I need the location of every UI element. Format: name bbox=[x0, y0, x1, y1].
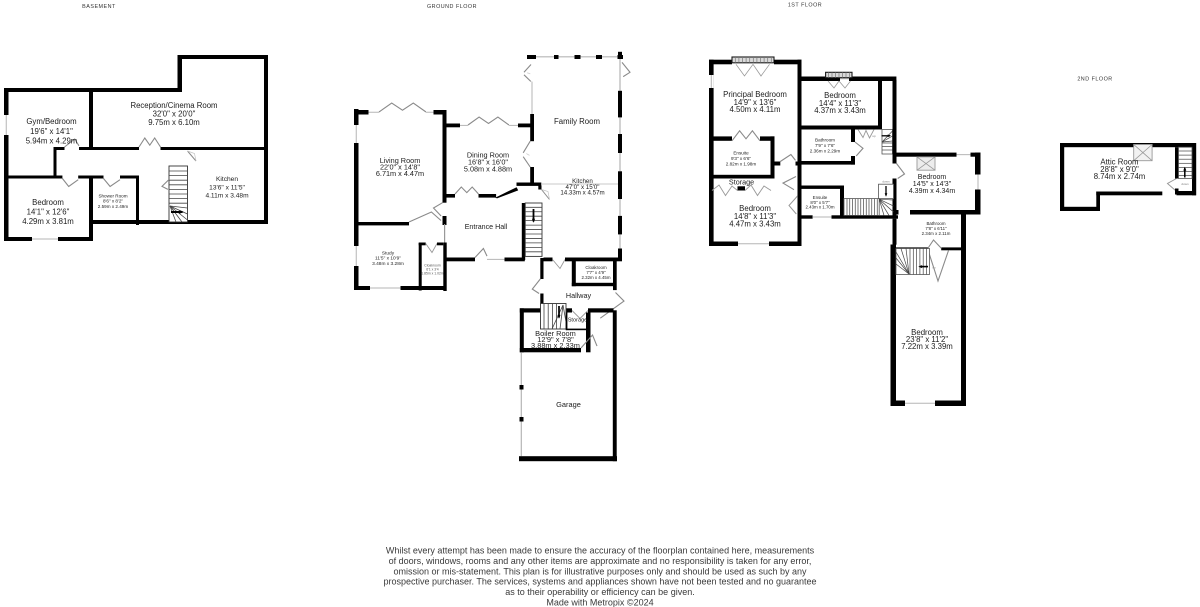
svg-text:Entrance Hall: Entrance Hall bbox=[465, 223, 508, 231]
svg-text:8'6" x 8'2": 8'6" x 8'2" bbox=[103, 199, 123, 204]
svg-text:Ensuite: Ensuite bbox=[733, 151, 749, 156]
svg-text:of doors, windows, rooms and a: of doors, windows, rooms and any other i… bbox=[389, 556, 812, 566]
svg-text:2.34m x 2.11m: 2.34m x 2.11m bbox=[922, 231, 951, 236]
svg-text:4.37m x 3.43m: 4.37m x 3.43m bbox=[814, 106, 866, 115]
svg-text:Gym/Bedroom: Gym/Bedroom bbox=[26, 117, 76, 126]
svg-text:2.32m x 4.45m: 2.32m x 4.45m bbox=[581, 275, 610, 280]
svg-text:omission or mis-statement. Thi: omission or mis-statement. This plan is … bbox=[393, 566, 807, 576]
svg-text:13'6" x 11'5": 13'6" x 11'5" bbox=[209, 184, 245, 191]
svg-text:Made with Metropix ©2024: Made with Metropix ©2024 bbox=[546, 598, 653, 607]
svg-text:Whilst every attempt has been: Whilst every attempt has been made to en… bbox=[386, 546, 815, 556]
svg-text:up: up bbox=[932, 266, 936, 270]
svg-text:8.74m x 2.74m: 8.74m x 2.74m bbox=[1094, 172, 1146, 181]
svg-text:Storage: Storage bbox=[568, 318, 588, 324]
svg-text:Hallway: Hallway bbox=[566, 291, 592, 300]
svg-text:BASEMENT: BASEMENT bbox=[82, 4, 116, 10]
svg-text:14.33m x 4.57m: 14.33m x 4.57m bbox=[560, 190, 604, 197]
svg-text:down: down bbox=[882, 180, 890, 184]
svg-text:7'9" x 7'6": 7'9" x 7'6" bbox=[815, 143, 835, 148]
svg-text:2ND FLOOR: 2ND FLOOR bbox=[1077, 77, 1112, 83]
svg-text:Bedroom: Bedroom bbox=[32, 198, 64, 207]
svg-text:4.39m x 4.34m: 4.39m x 4.34m bbox=[909, 188, 955, 195]
svg-text:9'3" x 6'6": 9'3" x 6'6" bbox=[731, 156, 751, 161]
svg-text:Garage: Garage bbox=[556, 400, 581, 409]
svg-text:Kitchen: Kitchen bbox=[216, 176, 238, 183]
svg-text:3.48m x 3.28m: 3.48m x 3.28m bbox=[372, 261, 404, 267]
svg-text:4.50m x 4.11m: 4.50m x 4.11m bbox=[730, 105, 781, 114]
svg-text:up: up bbox=[872, 134, 876, 138]
svg-text:as to their operability or eff: as to their operability or efficiency ca… bbox=[505, 587, 694, 597]
svg-text:2.43m x 1.70m: 2.43m x 1.70m bbox=[805, 205, 834, 210]
svg-text:prospective purchaser. The ser: prospective purchaser. The services, sys… bbox=[383, 577, 816, 587]
svg-text:2.82m x 1.98m: 2.82m x 1.98m bbox=[726, 162, 757, 167]
svg-text:Bathroom: Bathroom bbox=[815, 138, 835, 143]
svg-text:4.11m x 3.48m: 4.11m x 3.48m bbox=[205, 193, 249, 200]
svg-text:GROUND FLOOR: GROUND FLOOR bbox=[427, 4, 477, 10]
svg-text:4.29m x 3.81m: 4.29m x 3.81m bbox=[22, 217, 74, 226]
svg-text:down: down bbox=[1181, 182, 1189, 186]
svg-text:9.75m x 6.10m: 9.75m x 6.10m bbox=[148, 118, 200, 127]
svg-text:14'1" x 12'6": 14'1" x 12'6" bbox=[27, 208, 70, 217]
svg-text:1ST FLOOR: 1ST FLOOR bbox=[788, 3, 822, 9]
svg-text:Bedroom: Bedroom bbox=[918, 174, 947, 181]
svg-text:19'6" x 14'1": 19'6" x 14'1" bbox=[30, 127, 73, 136]
svg-text:4.47m x 3.43m: 4.47m x 3.43m bbox=[729, 219, 781, 228]
svg-text:Family Room: Family Room bbox=[554, 117, 600, 126]
svg-text:1.85m x 1.02m: 1.85m x 1.02m bbox=[421, 272, 444, 276]
svg-text:Study: Study bbox=[382, 251, 395, 257]
svg-text:2.59m x 2.49m: 2.59m x 2.49m bbox=[98, 204, 129, 209]
svg-text:2.36m x 2.29m: 2.36m x 2.29m bbox=[810, 149, 841, 154]
svg-text:5.08m x 4.88m: 5.08m x 4.88m bbox=[464, 164, 512, 173]
svg-text:6.71m x 4.47m: 6.71m x 4.47m bbox=[376, 169, 424, 178]
svg-text:5.94m x 4.29m: 5.94m x 4.29m bbox=[26, 137, 78, 146]
svg-text:3.88m x 2.33m: 3.88m x 2.33m bbox=[531, 341, 580, 350]
svg-text:7.22m x 3.39m: 7.22m x 3.39m bbox=[901, 342, 953, 351]
svg-text:11'5" x 10'9": 11'5" x 10'9" bbox=[375, 256, 401, 262]
